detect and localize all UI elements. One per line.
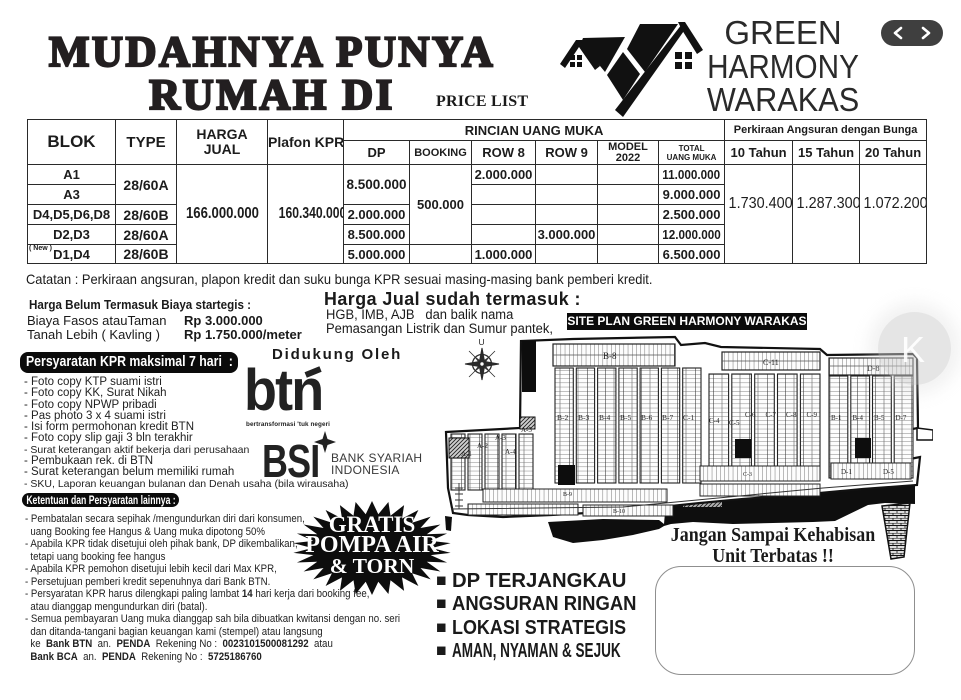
svg-text:C-5: C-5 — [729, 419, 740, 427]
svg-text:C-6: C-6 — [745, 411, 756, 419]
svg-text:B-2: B-2 — [557, 413, 569, 422]
svg-text:D-7: D-7 — [896, 414, 907, 422]
svg-text:A-1: A-1 — [461, 450, 472, 458]
svg-text:B-8: B-8 — [603, 351, 617, 361]
svg-text:B-5: B-5 — [874, 414, 885, 422]
svg-text:B-4: B-4 — [599, 413, 611, 422]
svg-text:D-1: D-1 — [841, 468, 852, 476]
svg-text:A-5: A-5 — [521, 426, 532, 434]
svg-text:D-5: D-5 — [883, 468, 894, 476]
svg-text:B-4: B-4 — [853, 414, 864, 422]
svg-text:B-9: B-9 — [563, 492, 572, 498]
svg-text:C-1: C-1 — [683, 413, 695, 422]
svg-text:B-10: B-10 — [613, 509, 625, 515]
svg-text:C-8: C-8 — [786, 411, 797, 419]
svg-text:C-11: C-11 — [763, 358, 779, 367]
svg-text:B-6: B-6 — [641, 413, 653, 422]
svg-text:D-8: D-8 — [867, 364, 879, 373]
svg-text:A-4: A-4 — [505, 448, 516, 456]
svg-text:C-3: C-3 — [743, 472, 752, 478]
svg-text:C-7: C-7 — [766, 411, 777, 419]
svg-text:B-7: B-7 — [662, 413, 674, 422]
svg-text:A-3: A-3 — [495, 434, 506, 442]
svg-text:B-3: B-3 — [578, 413, 590, 422]
svg-text:A-2: A-2 — [477, 442, 488, 450]
svg-text:C-9: C-9 — [807, 411, 818, 419]
svg-text:B-1: B-1 — [831, 414, 842, 422]
svg-text:B-5: B-5 — [620, 413, 632, 422]
svg-text:C-4: C-4 — [709, 417, 720, 425]
